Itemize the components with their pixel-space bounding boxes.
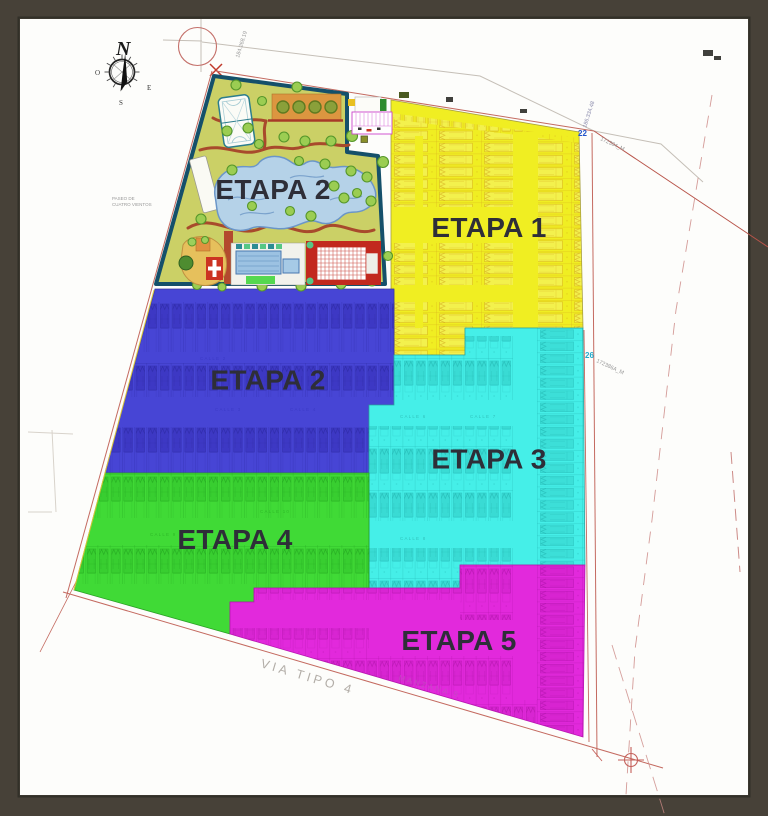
svg-text:N: N bbox=[115, 38, 132, 60]
svg-text:E: E bbox=[147, 84, 151, 92]
svg-text:CALLE 7: CALLE 7 bbox=[470, 414, 496, 419]
svg-text:S: S bbox=[119, 99, 123, 107]
svg-text:ETAPA 5: ETAPA 5 bbox=[401, 625, 516, 656]
svg-text:CALLE 10: CALLE 10 bbox=[260, 509, 290, 514]
svg-text:CALLE 8: CALLE 8 bbox=[400, 536, 426, 541]
svg-text:CALLE 6: CALLE 6 bbox=[400, 414, 426, 419]
svg-text:ETAPA 2: ETAPA 2 bbox=[210, 365, 325, 396]
svg-text:CALLE 4: CALLE 4 bbox=[290, 407, 316, 412]
svg-text:PASEO DE: PASEO DE bbox=[112, 196, 135, 201]
svg-text:CALLE 3: CALLE 3 bbox=[215, 407, 241, 412]
svg-text:ETAPA 2: ETAPA 2 bbox=[215, 174, 330, 205]
svg-text:CALLE 2: CALLE 2 bbox=[200, 356, 226, 361]
svg-text:ETAPA 3: ETAPA 3 bbox=[431, 444, 546, 475]
svg-text:CUATRO VIENTOS: CUATRO VIENTOS bbox=[112, 202, 152, 207]
svg-text:22: 22 bbox=[578, 129, 587, 138]
svg-text:CALLE 9: CALLE 9 bbox=[150, 532, 176, 537]
svg-text:ETAPA 4: ETAPA 4 bbox=[177, 524, 292, 555]
svg-text:ETAPA 1: ETAPA 1 bbox=[431, 212, 546, 243]
svg-text:26: 26 bbox=[585, 351, 594, 360]
svg-text:O: O bbox=[95, 69, 100, 77]
